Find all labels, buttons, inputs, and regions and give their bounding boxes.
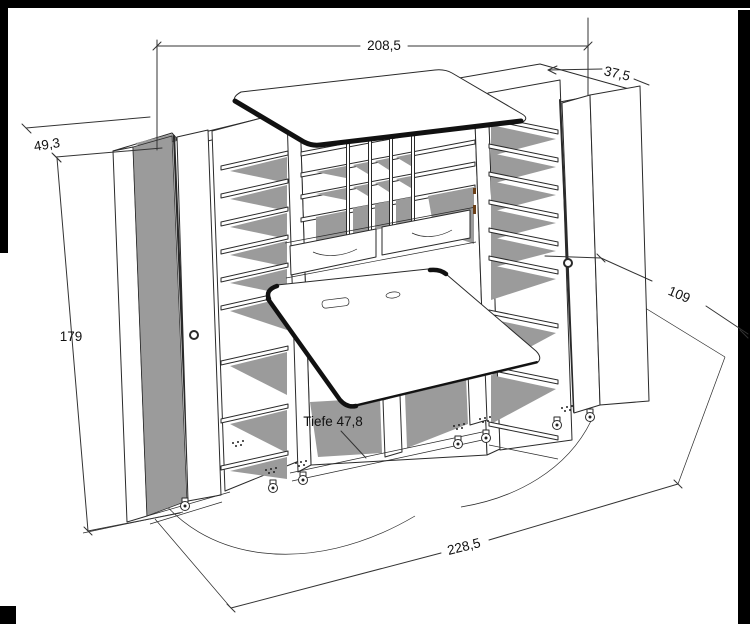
hinge-mark-lower: [473, 205, 476, 214]
frame-bar-corner: [0, 606, 16, 624]
dimension-label-door-depth: 49,3: [33, 135, 61, 154]
dimension-label-height: 179: [60, 329, 83, 344]
floor-edge-left: [155, 519, 231, 608]
dimension-label-table-depth: Tiefe 47,8: [303, 414, 363, 429]
right-door-outer-face: [590, 86, 649, 405]
left-door-wing: [113, 110, 302, 524]
right-door-knob: [564, 259, 572, 267]
left-door-knob: [190, 331, 198, 339]
dimension-width-floor: 228,5: [227, 480, 682, 612]
drawing-page: 208,5 37,5 49,3 179 109 Tiefe 47,8: [0, 0, 750, 624]
floor-edge-right: [678, 357, 725, 484]
dimension-label-depth-top-right: 37,5: [603, 63, 632, 84]
technical-drawing-canvas: 208,5 37,5 49,3 179 109 Tiefe 47,8: [0, 0, 750, 624]
frame-bar-top: [0, 0, 750, 8]
frame-bar-right: [738, 10, 750, 624]
dimension-label-width-top: 208,5: [367, 38, 401, 53]
frame-bar-left: [0, 8, 8, 253]
hinge-mark-upper: [473, 188, 476, 194]
dimension-label-depth-open: 109: [666, 283, 693, 306]
table-support-panel-left: [383, 395, 402, 457]
dimension-label-width-floor: 228,5: [446, 535, 482, 558]
